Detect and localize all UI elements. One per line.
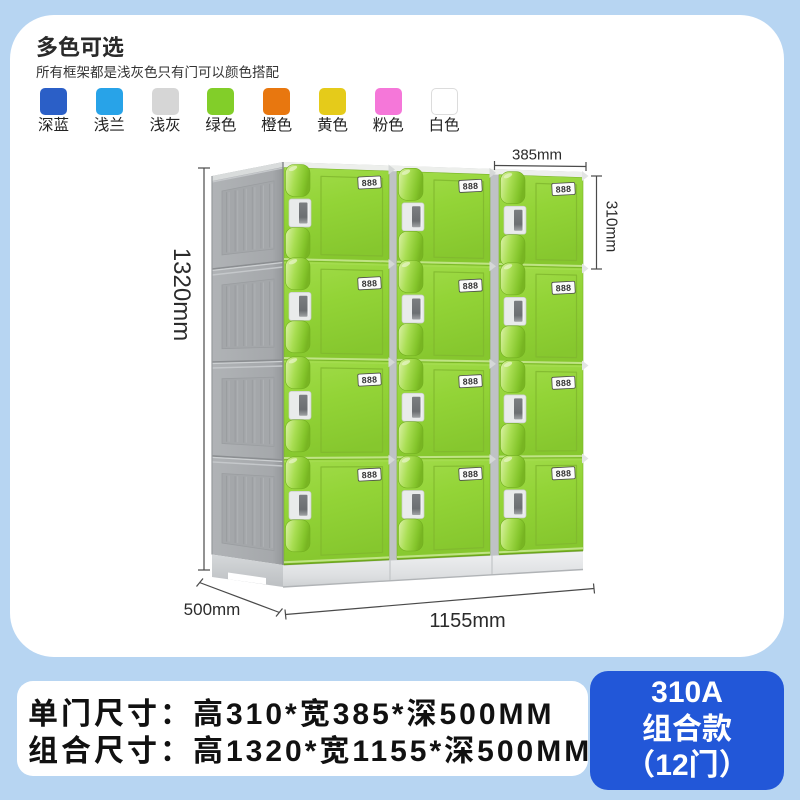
svg-text:888: 888 [462,376,478,387]
svg-text:888: 888 [361,177,377,188]
svg-text:888: 888 [462,280,478,291]
svg-text:888: 888 [555,468,571,479]
svg-text:500mm: 500mm [184,600,241,619]
svg-text:310mm: 310mm [603,201,620,253]
svg-text:888: 888 [361,469,377,480]
svg-text:888: 888 [462,469,478,480]
svg-text:1155mm: 1155mm [429,610,505,632]
svg-text:888: 888 [555,283,571,294]
svg-text:385mm: 385mm [512,147,562,164]
svg-text:888: 888 [555,184,571,195]
svg-text:888: 888 [462,181,478,192]
svg-text:1320mm: 1320mm [168,248,195,341]
svg-text:888: 888 [361,278,377,289]
svg-text:888: 888 [555,378,571,389]
svg-text:888: 888 [361,374,377,385]
